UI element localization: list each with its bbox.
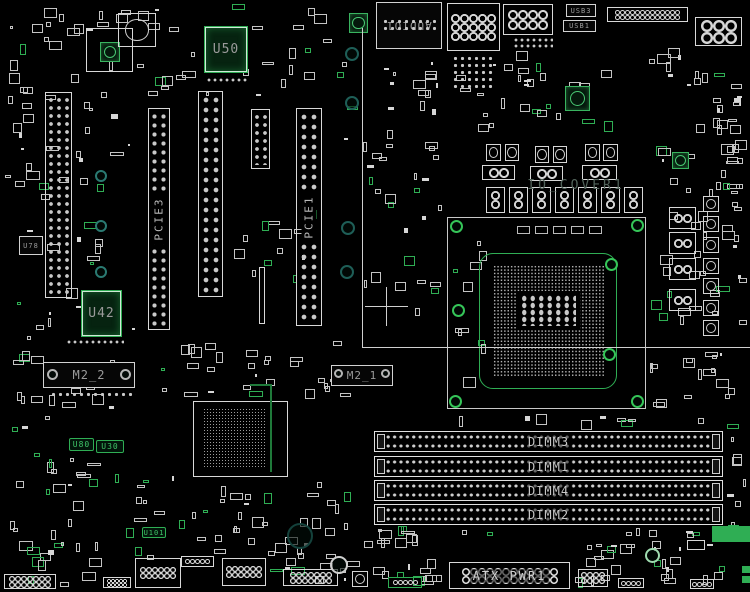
smd-component xyxy=(340,393,351,397)
smd-component xyxy=(95,542,98,550)
smd-component xyxy=(8,96,12,104)
smd-component xyxy=(68,519,72,527)
pin-circles xyxy=(185,559,210,564)
smd-component xyxy=(214,549,226,554)
chip-u78: U78 xyxy=(19,236,43,255)
smd-component xyxy=(636,528,640,535)
smd-component xyxy=(537,110,547,117)
smd-component xyxy=(725,394,730,400)
smd-component xyxy=(27,230,33,232)
smd-component xyxy=(417,280,426,284)
smd-component xyxy=(176,75,186,81)
via-hole xyxy=(345,47,359,61)
smd-component xyxy=(401,531,415,535)
smd-component xyxy=(87,256,99,260)
smd-component xyxy=(111,114,118,119)
smd-component xyxy=(735,140,747,150)
pin-circles xyxy=(226,566,262,578)
smd-component xyxy=(696,124,705,133)
pin-circles xyxy=(606,191,615,209)
smd-component xyxy=(307,493,319,497)
smd-component xyxy=(395,282,406,291)
smd-component xyxy=(49,459,52,468)
smd-component xyxy=(377,540,390,544)
smd-component xyxy=(19,132,22,137)
smd-component xyxy=(731,191,738,195)
smd-component xyxy=(727,157,738,165)
smd-component xyxy=(46,22,52,27)
pin-circles xyxy=(581,572,605,584)
smd-component xyxy=(148,91,158,96)
smd-component xyxy=(59,14,65,22)
mounting-hole xyxy=(603,348,616,361)
pcie-slot-pcie3: PCIE3 xyxy=(148,108,170,330)
capacitor xyxy=(352,571,368,587)
pcie-pin-connector xyxy=(198,91,223,297)
smd-component xyxy=(179,520,185,529)
smd-component xyxy=(31,396,42,403)
smd-component xyxy=(246,350,258,357)
smd-component xyxy=(48,318,52,328)
mounting-hole xyxy=(449,395,462,408)
pcie-slot-pcie1-label: PCIE1 xyxy=(302,191,317,242)
smd-component xyxy=(432,109,436,114)
via-hole xyxy=(95,220,107,232)
smd-component xyxy=(650,363,653,373)
smd-component xyxy=(425,575,438,581)
smd-component xyxy=(337,72,344,79)
smd-component xyxy=(77,474,91,478)
smd-component xyxy=(666,569,673,579)
smd-component xyxy=(611,545,617,547)
smd-component xyxy=(252,26,263,30)
smd-component xyxy=(363,142,367,152)
smd-component xyxy=(80,178,88,185)
pin-circles xyxy=(514,191,523,209)
smd-component xyxy=(289,48,296,58)
smd-component xyxy=(95,239,104,247)
smd-component xyxy=(395,538,407,547)
aux-connector xyxy=(251,109,270,169)
smd-component xyxy=(17,302,21,305)
chip-u42-label: U42 xyxy=(88,306,114,321)
lan-connector xyxy=(447,3,500,51)
smd-component xyxy=(720,353,722,356)
smd-component xyxy=(188,344,195,354)
smd-component xyxy=(737,96,742,98)
pin-circles xyxy=(674,265,692,274)
smd-component xyxy=(716,379,730,387)
smd-component xyxy=(101,92,107,98)
smd-component xyxy=(364,280,367,288)
smd-component xyxy=(293,25,304,30)
smd-component xyxy=(21,148,25,150)
smd-component xyxy=(684,395,692,399)
smd-component xyxy=(438,205,441,212)
smd-component xyxy=(731,437,734,442)
pin-circles xyxy=(290,572,332,584)
smd-component xyxy=(393,72,396,76)
smd-component xyxy=(735,501,741,507)
smd-component xyxy=(369,177,373,185)
smd-component xyxy=(82,572,96,581)
smd-component xyxy=(347,561,360,567)
atx-power-connector-label: ATX PWR1 xyxy=(470,569,550,583)
smd-component xyxy=(733,454,742,465)
smd-component xyxy=(79,158,83,161)
smd-component xyxy=(262,221,268,230)
smd-component xyxy=(739,278,746,283)
smd-component xyxy=(192,512,196,519)
screw-hole xyxy=(120,369,131,380)
oscillator xyxy=(100,42,120,62)
pin-circles xyxy=(489,168,509,178)
smd-component xyxy=(404,228,409,233)
smd-component xyxy=(335,504,338,515)
smd-component xyxy=(13,123,22,133)
smd-component xyxy=(721,144,734,154)
smd-component xyxy=(386,144,393,148)
smd-component xyxy=(414,173,417,180)
slot-end-tab xyxy=(377,507,385,522)
smd-component xyxy=(687,84,691,86)
smd-component xyxy=(367,165,374,168)
smd-component xyxy=(422,216,426,220)
smd-component xyxy=(422,178,429,181)
smd-component xyxy=(256,94,262,96)
smd-component xyxy=(97,22,109,27)
crosshair-horizontal xyxy=(365,306,408,307)
smd-component xyxy=(698,369,702,380)
smd-component xyxy=(305,48,311,53)
smd-component xyxy=(344,492,351,502)
smd-component xyxy=(620,544,632,554)
trimmer-component xyxy=(118,13,156,47)
dimm-slot-dimm2: DIMM2 xyxy=(374,504,723,525)
slot-end-tab xyxy=(712,507,720,522)
via-hole xyxy=(95,266,107,278)
smd-component xyxy=(582,119,595,124)
smd-component xyxy=(68,484,72,487)
smd-component xyxy=(85,127,91,134)
vrm-capacitor xyxy=(703,237,719,253)
smd-component xyxy=(721,170,726,178)
smd-component xyxy=(536,414,547,425)
smd-component xyxy=(556,113,562,120)
smd-component xyxy=(520,104,530,111)
smd-component xyxy=(76,543,80,552)
smd-component xyxy=(670,557,681,564)
smd-component xyxy=(70,458,74,462)
smd-component xyxy=(12,427,18,432)
smd-component xyxy=(249,391,263,397)
smd-component xyxy=(668,48,680,58)
smd-component xyxy=(143,480,149,483)
smd-component xyxy=(408,564,410,569)
smd-component xyxy=(84,102,91,109)
smd-component xyxy=(262,522,267,526)
pin-header xyxy=(578,569,608,587)
dimm-slot-dimm4: DIMM4 xyxy=(374,480,723,501)
pin-circles xyxy=(621,581,641,586)
smd-component xyxy=(26,163,31,170)
smd-component xyxy=(462,530,467,535)
smd-component xyxy=(342,62,347,67)
smd-component xyxy=(727,494,734,497)
pad-row xyxy=(206,77,248,83)
smd-component xyxy=(268,221,280,225)
smd-component xyxy=(221,486,226,497)
smd-component xyxy=(385,194,396,204)
ground-pad xyxy=(742,566,750,573)
smd-component xyxy=(626,532,632,536)
inductor xyxy=(672,152,689,169)
pin-circles xyxy=(615,10,680,20)
smd-component xyxy=(483,113,488,117)
smd-component xyxy=(115,474,119,483)
smd-component xyxy=(372,153,382,159)
usb1-header: USB1 xyxy=(563,20,596,32)
smd-component xyxy=(290,361,299,367)
pin-circles xyxy=(629,191,638,209)
smd-component xyxy=(431,288,440,293)
smd-component xyxy=(712,355,717,358)
smd-component xyxy=(34,453,40,457)
usb3-header: USB3 xyxy=(566,4,596,17)
mounting-hole xyxy=(450,220,463,233)
pad-row xyxy=(66,339,124,345)
smd-component xyxy=(135,547,142,556)
smd-component xyxy=(698,418,704,424)
smd-component xyxy=(333,341,341,345)
pin-circles xyxy=(140,567,176,579)
smd-component xyxy=(670,178,678,185)
slot-end-tab xyxy=(377,459,385,474)
chip-u80-label: U80 xyxy=(73,440,90,449)
smd-component xyxy=(137,485,145,488)
smd-component xyxy=(716,182,721,191)
via-hole xyxy=(341,221,355,235)
usb1-header-label: USB1 xyxy=(569,22,590,30)
smd-component xyxy=(74,24,84,34)
smd-component xyxy=(662,159,664,162)
vrm-capacitor xyxy=(703,300,719,316)
smd-component xyxy=(161,86,168,90)
pin-circles xyxy=(674,296,692,305)
pin-circles xyxy=(107,579,127,587)
pin-circles xyxy=(451,14,496,41)
pin-header xyxy=(181,556,214,567)
smd-component xyxy=(711,368,715,373)
smd-component xyxy=(44,8,57,18)
smd-component xyxy=(234,526,237,533)
sata-connector xyxy=(135,558,181,588)
vrm-capacitor xyxy=(703,258,719,274)
smd-component xyxy=(184,392,198,398)
smd-component xyxy=(22,426,28,429)
smd-component xyxy=(489,123,494,128)
vrm-capacitor xyxy=(703,196,719,212)
vrm-mosfet xyxy=(669,232,696,254)
smd-component xyxy=(136,497,142,504)
thin-connector xyxy=(259,267,265,324)
smd-component xyxy=(90,262,95,266)
smd-component xyxy=(314,14,328,24)
smd-component xyxy=(73,501,83,512)
smd-component xyxy=(604,121,613,132)
smd-component xyxy=(477,93,484,96)
smd-component xyxy=(540,73,546,82)
smd-component xyxy=(197,537,207,540)
smd-component xyxy=(414,188,420,194)
smd-component xyxy=(48,550,54,555)
smd-component xyxy=(23,114,34,123)
dimm-slot-dimm1-label: DIMM1 xyxy=(525,460,572,474)
vrm-capacitor xyxy=(703,216,719,232)
smd-component xyxy=(154,511,166,515)
smd-component xyxy=(611,565,621,576)
smd-component xyxy=(304,72,314,80)
smd-component xyxy=(524,80,530,83)
smd-component xyxy=(22,351,30,361)
smd-component xyxy=(277,248,283,254)
smd-component xyxy=(687,533,695,538)
smd-component xyxy=(420,101,425,111)
chip-u50-label: U50 xyxy=(213,42,239,57)
smd-component xyxy=(420,568,432,574)
smd-component xyxy=(126,528,135,538)
smd-component xyxy=(87,463,101,466)
smd-component xyxy=(238,512,242,521)
smd-component xyxy=(344,523,348,530)
smd-component xyxy=(388,107,393,110)
dimm-slot-dimm2-label: DIMM2 xyxy=(525,508,572,522)
smd-component xyxy=(649,530,657,537)
pin-circles xyxy=(537,191,546,209)
smd-component xyxy=(516,51,528,61)
smd-component xyxy=(230,493,242,500)
smd-component xyxy=(248,538,254,545)
smd-component xyxy=(651,300,662,310)
smd-component xyxy=(628,419,636,423)
dimm-slot-dimm3: DIMM3 xyxy=(374,431,723,452)
smd-component xyxy=(717,120,727,129)
smd-component xyxy=(51,530,55,540)
smd-component xyxy=(344,578,346,581)
smd-component xyxy=(216,352,222,363)
vrm-capacitor xyxy=(505,144,519,161)
pin-circles xyxy=(560,191,569,209)
smd-component xyxy=(680,316,684,325)
pin-header xyxy=(618,578,644,588)
smd-component xyxy=(717,108,720,112)
smd-component xyxy=(109,406,114,409)
vrm-capacitor xyxy=(486,144,501,161)
slot-end-tab xyxy=(377,483,385,498)
oscillator xyxy=(349,13,368,33)
smd-component xyxy=(44,37,49,42)
pin-circles xyxy=(9,576,51,588)
smd-component xyxy=(734,207,741,211)
slot-end-tab xyxy=(377,434,385,449)
atx-power-connector: ATX PWR1 xyxy=(449,562,570,589)
smd-component xyxy=(387,130,393,139)
pcie-slot-pcie3-label: PCIE3 xyxy=(152,193,167,244)
left-edge-pin-connector xyxy=(45,92,72,298)
io-cover-label-label: IO_COVER1 xyxy=(527,178,624,193)
pin-header xyxy=(283,569,338,586)
vrm-capacitor xyxy=(703,278,719,294)
mounting-hole xyxy=(631,395,644,408)
vrm-capacitor xyxy=(535,146,549,163)
m2-slot-m2-1-label: M2_1 xyxy=(347,369,378,382)
smd-component xyxy=(686,188,690,193)
pin-circles xyxy=(491,191,500,209)
smd-component xyxy=(666,62,671,71)
vrm-mosfet xyxy=(669,207,696,229)
smd-component xyxy=(243,235,248,242)
smd-component xyxy=(587,545,592,549)
smd-component xyxy=(71,74,79,83)
smd-component xyxy=(384,68,389,71)
chip-u101-label: U101 xyxy=(144,529,165,537)
smd-component xyxy=(234,249,246,259)
pin-circles xyxy=(590,168,610,178)
smd-component xyxy=(668,74,674,77)
smd-component xyxy=(45,416,50,421)
smd-component xyxy=(143,500,147,504)
smd-component xyxy=(305,389,315,399)
smd-component xyxy=(51,469,57,474)
smd-component xyxy=(364,541,373,549)
mounting-hole xyxy=(452,304,465,317)
smd-component xyxy=(89,558,102,567)
smd-component xyxy=(719,566,725,572)
smd-component xyxy=(658,148,671,157)
mounting-hole xyxy=(631,219,644,232)
smd-component xyxy=(679,547,681,551)
chip-u30: U30 xyxy=(96,440,124,453)
mounting-hole xyxy=(287,523,313,549)
via-hole xyxy=(340,265,354,279)
smd-component xyxy=(730,125,742,134)
smd-component xyxy=(390,82,394,86)
smd-component xyxy=(270,569,283,572)
pin-dots xyxy=(201,95,221,293)
smd-component xyxy=(187,363,199,369)
pin-field xyxy=(452,55,494,89)
smd-component xyxy=(13,528,18,532)
smd-component xyxy=(478,124,489,132)
smd-component xyxy=(436,83,438,88)
smd-component xyxy=(15,181,25,188)
pin-circles xyxy=(583,191,592,209)
smd-component xyxy=(76,151,81,158)
chip-u42: U42 xyxy=(82,291,121,336)
ground-pad xyxy=(742,576,750,583)
smd-component xyxy=(275,543,287,552)
smd-component xyxy=(743,479,746,487)
via-hole xyxy=(95,170,107,182)
vrm-mosfet xyxy=(486,187,505,213)
smd-component xyxy=(232,4,244,10)
smd-component xyxy=(371,272,381,283)
smd-component xyxy=(433,155,439,160)
smd-component xyxy=(714,73,725,77)
pin-circles xyxy=(508,10,548,30)
smd-component xyxy=(97,184,104,192)
smd-component xyxy=(61,542,64,546)
